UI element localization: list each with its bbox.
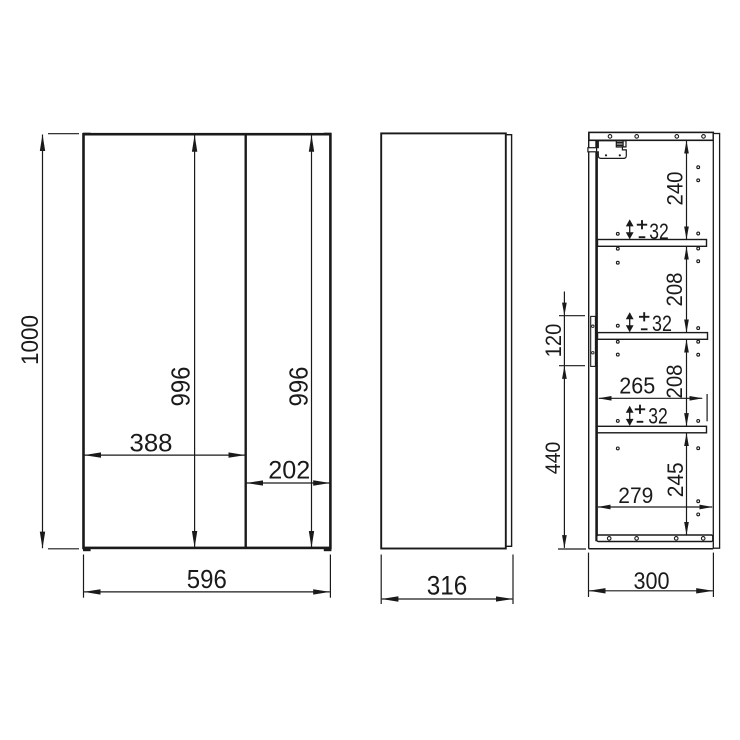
svg-text:202: 202 [268, 456, 310, 484]
svg-text:440: 440 [542, 442, 565, 475]
svg-text:208: 208 [662, 273, 687, 307]
svg-text:120: 120 [541, 324, 566, 358]
svg-text:300: 300 [634, 568, 670, 595]
svg-text:32: 32 [649, 219, 669, 244]
svg-text:996: 996 [285, 367, 313, 407]
svg-text:996: 996 [168, 367, 196, 407]
svg-text:265: 265 [619, 372, 655, 398]
svg-text:245: 245 [663, 462, 688, 497]
svg-text:32: 32 [648, 403, 668, 428]
svg-text:1000: 1000 [17, 315, 44, 365]
svg-text:240: 240 [663, 172, 688, 206]
svg-text:316: 316 [427, 571, 468, 601]
svg-text:388: 388 [130, 430, 173, 458]
svg-text:32: 32 [652, 311, 672, 336]
svg-text:208: 208 [662, 365, 687, 399]
svg-text:279: 279 [618, 483, 653, 508]
svg-text:596: 596 [187, 564, 227, 594]
